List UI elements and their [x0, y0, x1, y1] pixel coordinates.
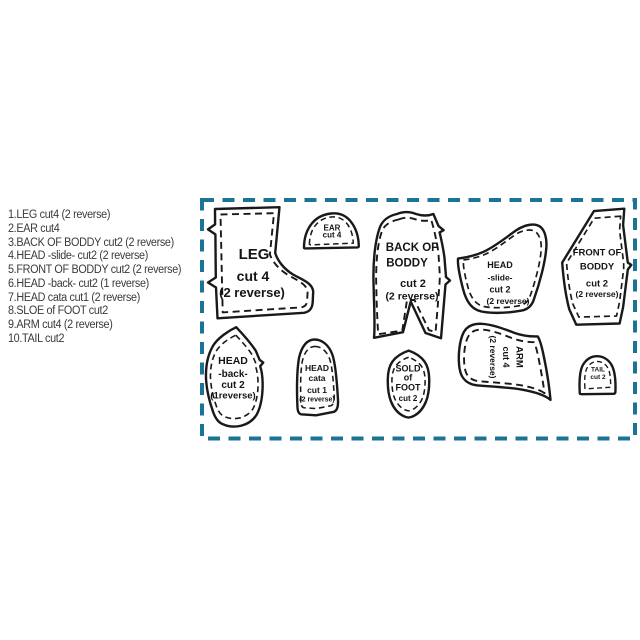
svg-text:ARM: ARM [514, 346, 525, 368]
svg-text:cata: cata [308, 373, 325, 383]
svg-text:(2 reverse): (2 reverse) [575, 289, 618, 299]
svg-text:cut 4: cut 4 [237, 268, 270, 284]
svg-text:BODDY: BODDY [580, 262, 615, 273]
svg-text:TAIL: TAIL [591, 367, 605, 374]
svg-text:cut 1: cut 1 [307, 385, 327, 395]
svg-text:(1reverse): (1reverse) [210, 391, 255, 402]
svg-text:(2 reverse): (2 reverse) [486, 296, 529, 306]
svg-text:(2 reverse): (2 reverse) [385, 291, 438, 303]
svg-text:(2 reverse): (2 reverse) [219, 285, 285, 300]
svg-text:HEAD: HEAD [305, 363, 329, 373]
svg-text:HEAD: HEAD [218, 355, 248, 367]
svg-text:cut 2: cut 2 [400, 278, 426, 290]
svg-text:FOOT: FOOT [396, 383, 421, 393]
svg-text:cut 2: cut 2 [489, 285, 510, 295]
svg-text:-back-: -back- [218, 369, 247, 380]
svg-text:BODDY: BODDY [386, 258, 428, 270]
svg-text:cut 2: cut 2 [399, 394, 418, 403]
svg-text:-slide-: -slide- [487, 273, 512, 283]
svg-text:BACK OF: BACK OF [386, 242, 438, 254]
svg-text:cut 2: cut 2 [221, 380, 245, 391]
svg-text:HEAD: HEAD [487, 260, 513, 270]
svg-text:cut 4: cut 4 [323, 231, 342, 240]
svg-text:cut 2: cut 2 [586, 279, 608, 290]
svg-text:FRONT OF: FRONT OF [573, 248, 622, 259]
svg-text:cut 2: cut 2 [590, 374, 606, 381]
svg-text:LEG: LEG [239, 246, 270, 263]
svg-text:(2 reverse): (2 reverse) [488, 335, 498, 378]
svg-text:of: of [404, 373, 413, 383]
svg-text:(2 reverse): (2 reverse) [299, 397, 334, 404]
svg-text:cut 4: cut 4 [501, 346, 511, 367]
